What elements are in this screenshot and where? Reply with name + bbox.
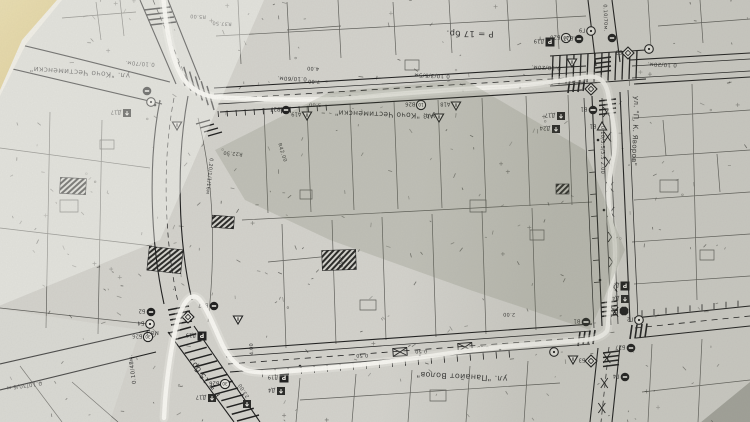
dimension-label: 0.10/60м.	[277, 74, 307, 81]
sign-code-label: Б27	[615, 344, 625, 350]
sign-code-label: Б27	[563, 35, 573, 41]
dimension-label: М8.1	[145, 329, 158, 335]
sign-code-label: Д19	[186, 332, 197, 338]
dimension-label: 0.50	[356, 352, 368, 358]
sign-code-label: В26	[405, 101, 415, 107]
speed-value: 10	[418, 102, 424, 107]
dimension-label: 7.00	[308, 78, 321, 84]
sign-code-label: Д24	[539, 125, 550, 131]
sign-code-label: Г9	[579, 27, 585, 33]
sign-code-label: А18	[440, 101, 450, 107]
traffic-sign-square	[243, 400, 251, 408]
dimension-label: R5.00	[190, 13, 206, 20]
traffic-sign-circle-filled	[608, 34, 617, 43]
sign-code-label: Б1	[590, 123, 597, 129]
map-photo: Д17В27А1910В26А13А18РД1930Б26Б27Г9Б3В1Д1…	[0, 0, 750, 422]
sign-code-label: Б26	[550, 34, 560, 40]
sign-code-label: Б3	[616, 49, 623, 55]
traffic-plan-map: Д17В27А1910В26А13А18РД1930Б26Б27Г9Б3В1Д1…	[0, 0, 750, 422]
sign-code-label: В27	[270, 106, 280, 112]
dimension-label: 3.50	[337, 256, 343, 269]
traffic-sign-circle	[147, 98, 156, 107]
traffic-sign-circle-filled	[143, 87, 152, 96]
sign-code-label: Б2	[139, 308, 146, 314]
sign-code-label: Д17	[545, 112, 556, 118]
dimension-label: 0.10/70м.	[602, 4, 609, 32]
sign-code-label: Г2	[627, 316, 633, 322]
sign-code-label: Б26	[132, 333, 142, 339]
sign-code-label: А19	[291, 111, 301, 117]
dimension-label: R37.50	[212, 19, 232, 26]
dimension-label: 4.00	[249, 343, 255, 356]
parking-p-glyph: Р	[199, 332, 204, 339]
dimension-label: 4.00	[307, 65, 320, 71]
parking-p-glyph: Р	[622, 282, 627, 289]
sign-code-label: Д17	[111, 109, 122, 115]
sign-code-label: Д17	[196, 394, 207, 400]
sign-code-label: Б4	[137, 320, 145, 326]
sign-code-label: В1	[581, 106, 588, 112]
sign-code-label: Б3	[579, 357, 586, 363]
speed-value: 30	[222, 381, 228, 386]
dimension-label: 0.10/3/5/5м	[414, 71, 450, 78]
sign-code-label: Г4	[612, 373, 619, 379]
parking-count-label: Р = 17 бр.	[446, 28, 494, 39]
dimension-label: 2.00	[503, 311, 515, 317]
dimension-label: 0.10/20м.	[647, 60, 677, 67]
sign-code-label: Д19	[534, 38, 545, 44]
sign-code-label: В1	[574, 318, 581, 324]
sign-code-label: Д4	[267, 387, 275, 393]
dimension-label: 0.10/3.5/3.5 2.00	[599, 126, 605, 174]
traffic-sign-circle	[550, 348, 559, 357]
traffic-sign-circle	[645, 45, 654, 54]
dimension-label: 0.10/20м.	[531, 63, 561, 70]
